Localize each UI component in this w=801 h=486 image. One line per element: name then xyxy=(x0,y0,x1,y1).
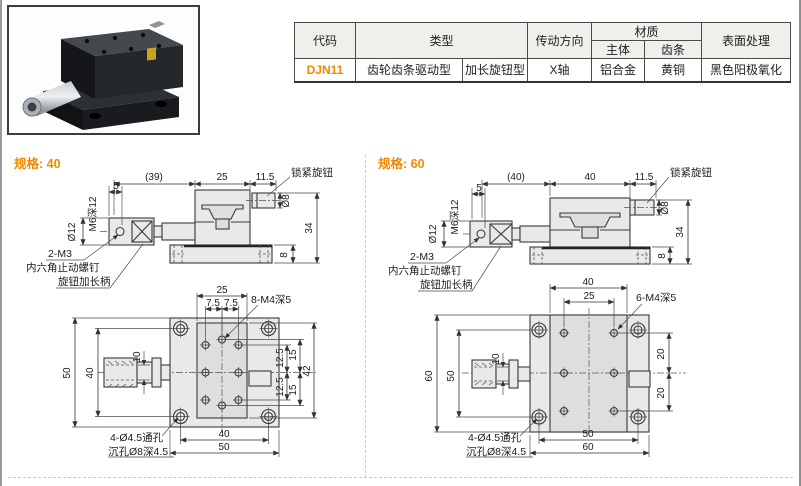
cell-type-main: 齿轮齿条驱动型 xyxy=(356,59,463,82)
dim-125-lower: 12.5 xyxy=(275,377,286,397)
spec40-drawing: .p { fill:#e9e9e9; stroke:#3a3a3a; strok… xyxy=(10,165,362,470)
counterbore-note: 沉孔Ø8深4.5 xyxy=(466,445,526,458)
dim-body-width: 40 xyxy=(584,172,596,183)
spec40-side-view: (39) 25 11.5 锁紧旋钮 M6深12 5 Ø12 Ø8 34 8 2-… xyxy=(26,166,333,288)
counterbore-note: 沉孔Ø8深4.5 xyxy=(108,445,168,458)
dim-125-upper: 12.5 xyxy=(275,348,286,368)
lock-knob-label: 锁紧旋钮 xyxy=(670,166,712,179)
dim-bot-40: 40 xyxy=(218,429,230,440)
spec60-front-view: 10 60 50 20 20 40 25 6-M4深5 50 60 4-Ø4. xyxy=(424,277,686,458)
set-screw-name-label: 内六角止动螺钉 xyxy=(388,264,462,277)
set-screw-name-label: 内六角止动螺钉 xyxy=(26,261,100,274)
dim-bot-50: 50 xyxy=(582,429,594,440)
dim-15-upper: 15 xyxy=(288,349,299,361)
dim-total-length: (40) xyxy=(507,172,525,183)
dim-bot-60: 60 xyxy=(582,442,594,453)
cell-material-body: 铝合金 xyxy=(592,59,645,82)
handle-name-label: 旋钮加长柄 xyxy=(420,278,473,291)
thru-hole-note: 4-Ø4.5通孔 xyxy=(110,431,164,444)
dim-10: 10 xyxy=(491,353,502,365)
handle-name-label: 旋钮加长柄 xyxy=(58,275,111,288)
lock-knob-label: 锁紧旋钮 xyxy=(291,166,333,179)
spec60-side-view: (40) 40 11.5 锁紧旋钮 M6深12 5 Ø12 Ø8 34 8 2-… xyxy=(388,166,712,291)
dim-10: 10 xyxy=(132,351,143,363)
dim-34: 34 xyxy=(304,222,315,234)
thru-hole-note: 4-Ø4.5通孔 xyxy=(468,431,522,444)
table-row: DJN11 齿轮齿条驱动型 加长旋钮型 X轴 铝合金 黄铜 黑色阳极氧化 xyxy=(295,59,791,82)
col-header-code: 代码 xyxy=(295,23,356,59)
dim-body-width: 25 xyxy=(216,172,228,183)
holes-callout: 8-M4深5 xyxy=(251,294,291,306)
col-header-direction: 传动方向 xyxy=(528,23,592,59)
dim-bot-50: 50 xyxy=(218,442,230,453)
dim-d12: Ø12 xyxy=(67,222,78,241)
dim-8: 8 xyxy=(279,252,290,258)
dim-34: 34 xyxy=(675,226,686,238)
set-screw-qty-label: 2-M3 xyxy=(410,251,434,263)
dim-20-upper: 20 xyxy=(656,348,667,360)
base-plate-side xyxy=(170,245,272,263)
cell-surface: 黑色阳极氧化 xyxy=(702,59,791,82)
col-header-material: 材质 xyxy=(592,23,702,41)
dim-75b: 7.5 xyxy=(224,298,238,309)
vertical-divider xyxy=(365,155,366,478)
holes-callout: 6-M4深5 xyxy=(636,292,676,304)
product-photo-render xyxy=(9,7,198,133)
col-header-material-rack: 齿条 xyxy=(645,41,702,59)
dim-75a: 7.5 xyxy=(206,298,220,309)
set-screw-qty-label: 2-M3 xyxy=(48,248,72,260)
dim-inner-40: 40 xyxy=(85,367,96,379)
dim-5: 5 xyxy=(113,181,119,192)
col-header-type: 类型 xyxy=(356,23,528,59)
dim-outer-50: 50 xyxy=(62,367,73,379)
dim-knob-length: 11.5 xyxy=(256,172,275,183)
set-screw xyxy=(116,228,124,236)
spec-table: 代码 类型 传动方向 材质 表面处理 主体 齿条 DJN11 齿轮齿条驱动型 加… xyxy=(294,22,791,83)
dim-top-25: 25 xyxy=(583,291,595,302)
m6-label: M6深12 xyxy=(449,199,461,234)
drive-shaft xyxy=(162,223,195,240)
dim-d12: Ø12 xyxy=(428,224,439,243)
dim-top-25: 25 xyxy=(216,285,228,296)
col-header-material-body: 主体 xyxy=(592,41,645,59)
spec60-drawing: .p { fill:#e9e9e9; stroke:#3a3a3a; strok… xyxy=(370,165,750,470)
cell-type-sub: 加长旋钮型 xyxy=(463,59,528,82)
product-photo xyxy=(7,5,200,135)
drive-shaft xyxy=(520,226,550,242)
cell-material-rack: 黄铜 xyxy=(645,59,702,82)
dim-15-lower: 15 xyxy=(288,384,299,396)
base-plate-side xyxy=(530,247,650,264)
lock-knob-front xyxy=(249,371,271,386)
horizontal-divider xyxy=(8,477,793,478)
spec40-front-view: 10 50 40 12.5 15 12.5 15 42 25 7.5 7.5 8… xyxy=(62,285,317,458)
dim-8: 8 xyxy=(657,253,668,259)
dim-total-length: (39) xyxy=(145,172,163,183)
stage-gold-label xyxy=(147,48,156,61)
cell-code: DJN11 xyxy=(295,59,356,82)
dim-20-lower: 20 xyxy=(656,387,667,399)
lock-knob-front xyxy=(629,371,650,387)
dim-d8: Ø8 xyxy=(281,194,292,208)
dim-42: 42 xyxy=(302,365,313,377)
col-header-surface: 表面处理 xyxy=(702,23,791,59)
set-screw xyxy=(477,230,485,238)
dim-inner-50: 50 xyxy=(446,370,457,382)
m6-label: M6深12 xyxy=(87,196,99,231)
dim-d8: Ø8 xyxy=(660,201,671,215)
dim-5: 5 xyxy=(476,183,482,194)
dim-outer-60: 60 xyxy=(424,370,435,382)
cell-direction: X轴 xyxy=(528,59,592,82)
dim-top-40: 40 xyxy=(582,277,594,288)
dim-knob-length: 11.5 xyxy=(635,172,654,183)
